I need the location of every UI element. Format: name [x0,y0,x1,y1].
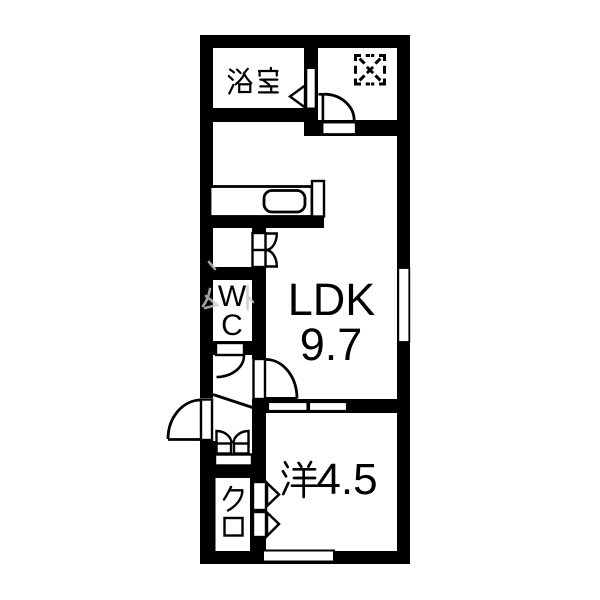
svg-text:LDK: LDK [288,274,376,325]
svg-text:C: C [221,309,243,342]
svg-text:4.5: 4.5 [316,455,377,504]
svg-text:9.7: 9.7 [300,319,363,370]
